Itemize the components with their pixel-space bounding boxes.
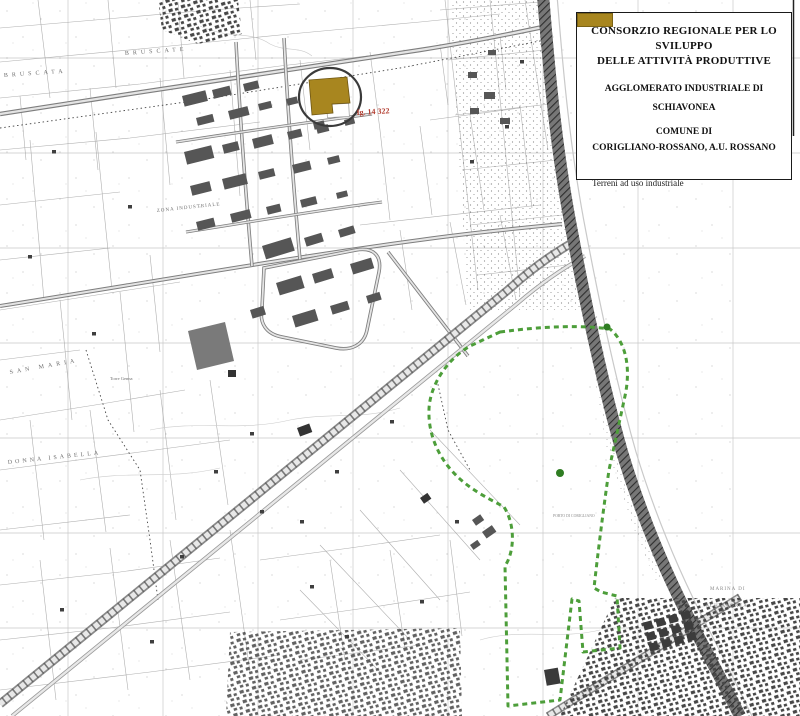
commune-title: COMUNE DI CORIGLIANO-ROSSANO, A.U. ROSSA… [577,124,791,156]
port-building [544,668,561,686]
commune-line-2: CORIGLIANO-ROSSANO, A.U. ROSSANO [577,140,791,156]
parcel-ref-label: fg. 14 322 [357,106,390,117]
label-marina-di: MARINA DI [710,587,746,592]
subtitle-line-2: SCHIAVONEA [577,99,791,118]
legend-swatch [577,13,613,27]
title-box: CONSORZIO REGIONALE PER LO SVILUPPO DELL… [576,12,792,180]
label-schiavonea: SCHIAVONEA [706,604,748,609]
cadastral-map-canvas: BRUSCATE BRUSCATA ZONA INDUSTRIALE SAN M… [0,0,800,716]
label-porto-di-corigliano: PORTO DI CORIGLIANO [553,514,595,518]
title-line-2: DELLE ATTIVITÀ PRODUTTIVE [577,54,791,69]
subtitle-line-1: AGGLOMERATO INDUSTRIALE DI [577,80,791,99]
legend-row: Terreni ad uso industriale [577,178,791,188]
label-torre-genna: Torre Genna [110,376,133,381]
legend-label: Terreni ad uso industriale [592,178,684,188]
commune-line-1: COMUNE DI [577,124,791,140]
title-line-1: CONSORZIO REGIONALE PER LO SVILUPPO [577,24,791,54]
map-subtitle: AGGLOMERATO INDUSTRIALE DI SCHIAVONEA [577,80,791,118]
map-title: CONSORZIO REGIONALE PER LO SVILUPPO DELL… [577,24,791,69]
